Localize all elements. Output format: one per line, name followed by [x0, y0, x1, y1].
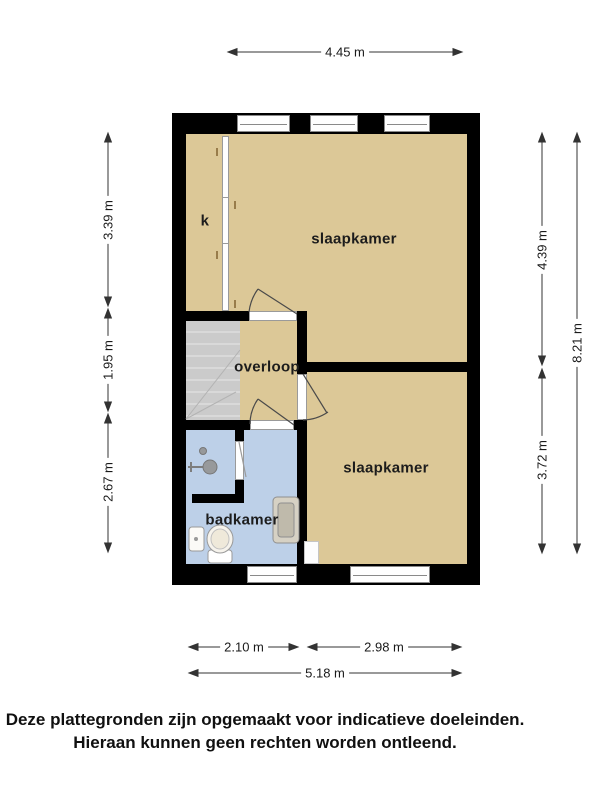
- door-bathroom: [250, 420, 294, 430]
- room-label-bedroom-top: slaapkamer: [311, 231, 397, 248]
- window-top-1: [237, 115, 290, 132]
- dim-bottom-1: 2.10 m: [220, 640, 268, 655]
- door-shower: [235, 441, 244, 480]
- window-top-3: [384, 115, 430, 132]
- outer-wall-bottom: [172, 564, 480, 585]
- room-label-landing: overloop: [234, 359, 300, 376]
- staircase: [186, 321, 240, 420]
- window-bottom-1: [247, 566, 297, 583]
- duct-niche: [304, 541, 319, 564]
- dim-bottom-2: 2.98 m: [360, 640, 408, 655]
- outer-wall-right: [467, 113, 480, 585]
- room-label-bathroom: badkamer: [205, 512, 278, 529]
- disclaimer-line-2: Hieraan kunnen geen rechten worden ontle…: [0, 731, 530, 754]
- dim-right-1: 4.39 m: [535, 226, 550, 274]
- floorplan-page: slaapkamer slaapkamer overloop badkamer …: [0, 0, 600, 800]
- closet-partition: [222, 136, 229, 311]
- disclaimer-text: Deze plattegronden zijn opgemaakt voor i…: [0, 708, 530, 754]
- outer-wall-left: [172, 113, 186, 585]
- window-bottom-2: [350, 566, 430, 583]
- wall-bedroom-divider: [297, 362, 467, 372]
- dim-right-2: 3.72 m: [535, 436, 550, 484]
- disclaimer-line-1: Deze plattegronden zijn opgemaakt voor i…: [0, 708, 530, 731]
- door-bedroom-bottom: [297, 374, 307, 420]
- shower-wall-bottom: [192, 494, 244, 503]
- dim-right-total: 8.21 m: [570, 319, 585, 367]
- dim-left-3: 2.67 m: [101, 458, 116, 506]
- dim-left-1: 3.39 m: [101, 196, 116, 244]
- door-bedroom-top: [249, 311, 297, 321]
- window-top-2: [310, 115, 358, 132]
- dim-left-2: 1.95 m: [101, 336, 116, 384]
- shower-wall-upper: [235, 430, 244, 441]
- room-label-closet: k: [201, 213, 210, 230]
- floor-plan: slaapkamer slaapkamer overloop badkamer …: [0, 0, 600, 800]
- room-label-bedroom-bottom: slaapkamer: [343, 460, 429, 477]
- dim-bottom-total: 5.18 m: [301, 666, 349, 681]
- dim-top: 4.45 m: [321, 45, 369, 60]
- wall-landing-right: [297, 311, 307, 564]
